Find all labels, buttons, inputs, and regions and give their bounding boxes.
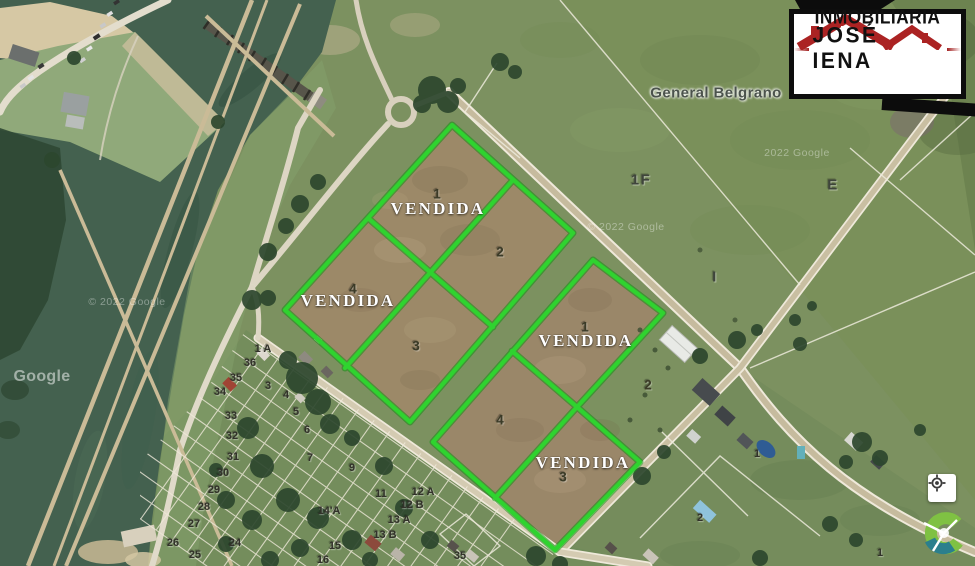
crosshair-icon <box>928 474 946 492</box>
red-divider-right <box>947 48 962 51</box>
circular-green-logo <box>921 509 967 555</box>
company-name-line2: JOSÉ IENA <box>813 24 943 74</box>
locate-button[interactable] <box>928 474 956 502</box>
real-estate-map-ad: General Belgrano1FEIVENDIDAVENDIDAVENDID… <box>0 0 975 566</box>
realtor-logo-card: INMOBILIARIA JOSÉ IENA <box>789 9 966 99</box>
